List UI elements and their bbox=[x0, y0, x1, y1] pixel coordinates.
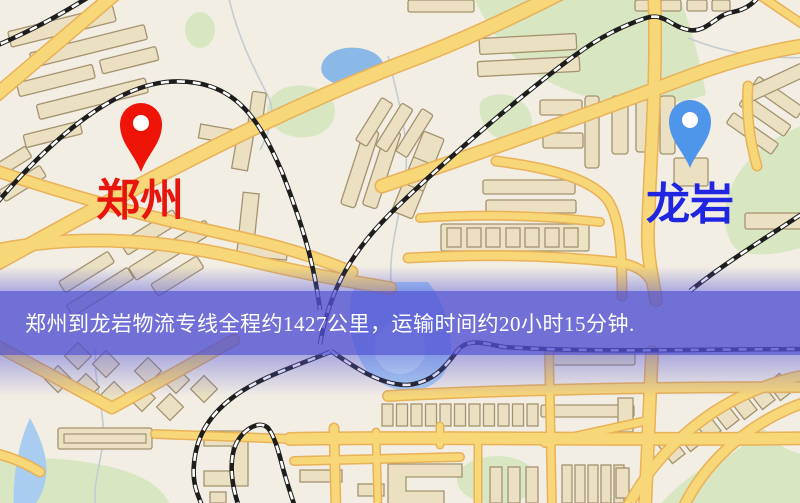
route-info-text: 郑州到龙岩物流专线全程约1427公里，运输时间约20小时15分钟. bbox=[25, 291, 635, 355]
row-buildings bbox=[382, 404, 538, 426]
destination-city-label: 龙岩 bbox=[646, 180, 734, 229]
route-info-banner: 郑州到龙岩物流专线全程约1427公里，运输时间约20小时15分钟. bbox=[0, 291, 800, 355]
origin-city-label: 郑州 bbox=[96, 176, 184, 225]
map-canvas: 郑州 龙岩 bbox=[0, 0, 800, 503]
map-screenshot: 郑州 龙岩 郑州到龙岩物流专线全程约1427公里，运输时间约20小时15分钟. bbox=[0, 0, 800, 503]
park-area bbox=[185, 12, 215, 48]
